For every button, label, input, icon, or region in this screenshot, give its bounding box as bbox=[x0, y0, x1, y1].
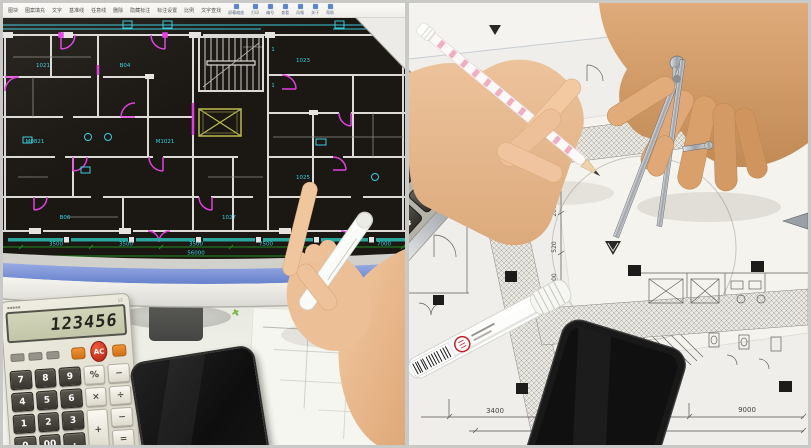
calc-key: = bbox=[112, 429, 135, 445]
calc-key: − bbox=[108, 363, 131, 383]
cad-viewport: 1021 B04 1023 M0821 M1021 1025 B06 1027 … bbox=[3, 17, 405, 261]
svg-text:520: 520 bbox=[551, 241, 558, 253]
blueprint-drafting-photo: 3400 9000 30700 2000 520 200 bbox=[409, 3, 808, 445]
menu-tool-icon bbox=[253, 4, 258, 9]
calc-key: 8 bbox=[34, 368, 57, 388]
desk-calculator: ▪▪▪▪▪12 123456 AC 7 8 9 % − 4 5 6 bbox=[3, 293, 140, 445]
calc-key: 00 bbox=[39, 434, 62, 445]
memory-key bbox=[10, 353, 24, 362]
svg-text:3400: 3400 bbox=[486, 407, 504, 415]
calc-key: 0 bbox=[14, 436, 37, 445]
menu-tool-icon bbox=[313, 4, 318, 9]
correct-key bbox=[112, 344, 127, 357]
calc-key: 1 bbox=[13, 414, 36, 434]
menu-item: 查看 bbox=[281, 4, 289, 16]
calculator-display-value: 123456 bbox=[49, 310, 118, 335]
clear-entry-key bbox=[71, 346, 86, 359]
menu-item: 风格 bbox=[296, 4, 304, 16]
desk-plant-decal bbox=[233, 309, 238, 316]
calculator-keypad: 7 8 9 % − 4 5 6 × ÷ 1 2 3 + − 0 00 . = bbox=[9, 363, 135, 445]
memory-key bbox=[46, 350, 60, 359]
menu-item: 比例 bbox=[184, 7, 194, 14]
menu-tool-icon bbox=[268, 4, 273, 9]
philips-logo: PHILIPS bbox=[161, 302, 191, 341]
screen-glare bbox=[3, 17, 405, 261]
desk-blueprint-paper bbox=[245, 307, 405, 445]
menu-item: 图案填充 bbox=[25, 7, 45, 14]
menu-tool-icon bbox=[298, 4, 303, 9]
photo-collage: 图块 图案填充 文字 基准线 任意线 删除 隐藏标注 标注设置 比例 文字查找 … bbox=[0, 0, 811, 448]
menu-item: 隐藏标注 bbox=[130, 7, 150, 14]
calc-key: × bbox=[85, 387, 108, 407]
menu-item: 帮助 bbox=[326, 4, 334, 16]
menu-tool-icon bbox=[234, 4, 239, 9]
calc-key: . bbox=[63, 432, 86, 445]
menu-item: 关于 bbox=[311, 4, 319, 16]
blueprint-scene: 3400 9000 30700 2000 520 200 bbox=[409, 3, 808, 445]
memory-key bbox=[28, 351, 42, 360]
menu-item: 删除 bbox=[113, 7, 123, 14]
menu-item: 基准线 bbox=[69, 7, 84, 14]
calc-key: + bbox=[86, 408, 110, 445]
smartphone bbox=[129, 344, 276, 445]
calc-key: 6 bbox=[60, 388, 83, 408]
menu-item: 文字查找 bbox=[201, 7, 221, 14]
menu-tool-icon bbox=[328, 4, 333, 9]
menu-item: 任意线 bbox=[91, 7, 106, 14]
calc-key: % bbox=[83, 365, 106, 385]
calc-key: 3 bbox=[62, 410, 85, 430]
calc-key: ÷ bbox=[109, 385, 132, 405]
calc-key: 5 bbox=[36, 390, 59, 410]
calc-key: 7 bbox=[9, 370, 32, 390]
calc-key: 9 bbox=[59, 366, 82, 386]
phone-glare bbox=[147, 347, 206, 445]
menu-tool-icon bbox=[283, 4, 288, 9]
menu-item: 打印 bbox=[251, 4, 259, 16]
menu-item: 屏幕缩放 bbox=[228, 4, 244, 16]
monitor-stand: PHILIPS bbox=[149, 297, 203, 341]
finger bbox=[712, 103, 737, 192]
menu-item: 图块 bbox=[8, 7, 18, 14]
calc-key: 4 bbox=[11, 392, 34, 412]
ac-key: AC bbox=[90, 340, 108, 362]
menu-item: 标注设置 bbox=[157, 7, 177, 14]
calc-key: − bbox=[111, 407, 134, 427]
menu-item: 编号 bbox=[266, 4, 274, 16]
cad-menu-bar: 图块 图案填充 文字 基准线 任意线 删除 隐藏标注 标注设置 比例 文字查找 … bbox=[3, 3, 405, 18]
svg-text:9000: 9000 bbox=[738, 406, 756, 414]
calc-key: 2 bbox=[37, 412, 60, 432]
menu-item: 文字 bbox=[52, 7, 62, 14]
cad-monitor-photo: 图块 图案填充 文字 基准线 任意线 删除 隐藏标注 标注设置 比例 文字查找 … bbox=[3, 3, 405, 445]
